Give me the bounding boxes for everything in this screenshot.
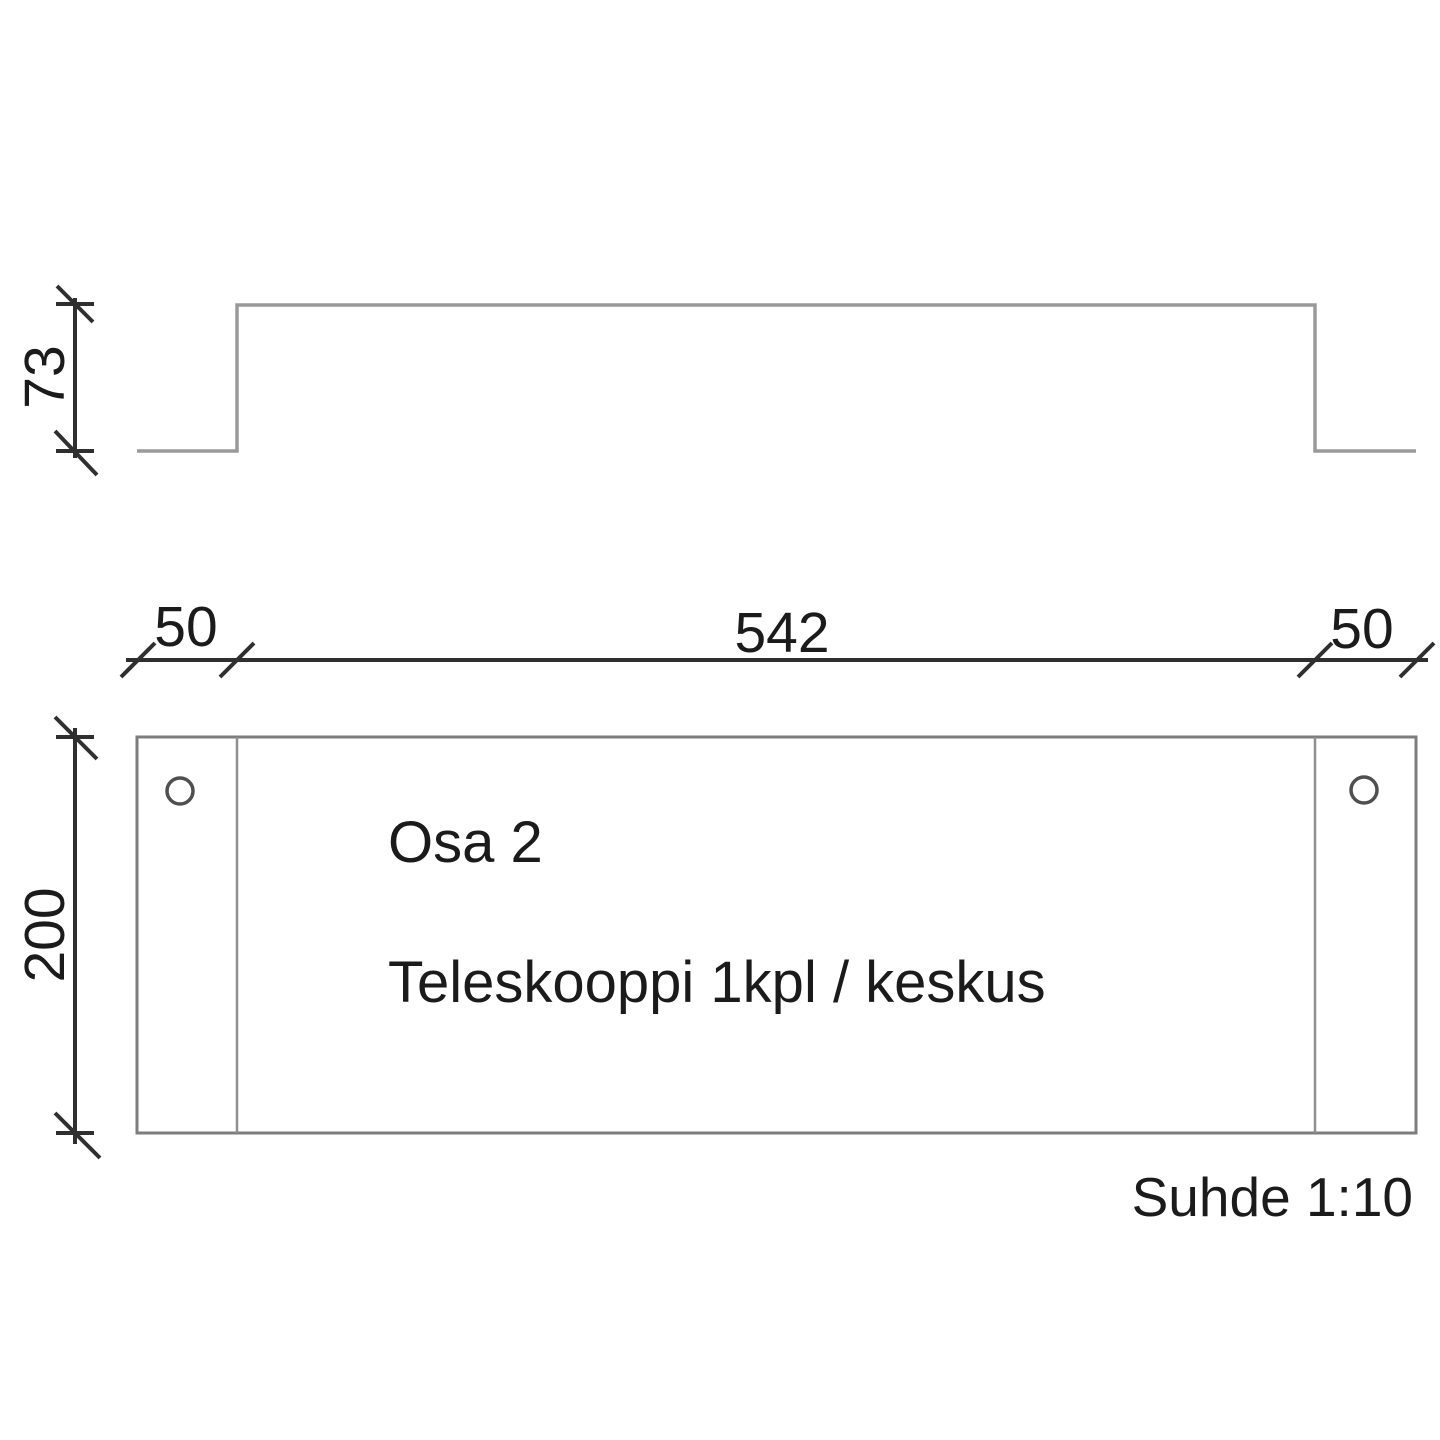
mounting-hole-left [167,778,193,804]
mounting-hole-right [1351,777,1377,803]
dim-tick-200-bottom [55,1113,100,1158]
profile-outline [137,305,1416,451]
scale-note-label: Suhde 1:10 [1132,1166,1413,1228]
technical-drawing-canvas: 73 50 542 50 200 Osa [0,0,1440,1440]
dim-value-profile-height: 73 [13,345,77,408]
dim-value-plate-height: 200 [13,887,77,982]
dim-value-body-width: 542 [734,601,829,665]
dim-value-right-flange: 50 [1330,597,1393,661]
part-description-label: Teleskooppi 1kpl / keskus [388,950,1046,1015]
plate-outline [137,737,1416,1133]
plan-view [137,737,1416,1133]
part-name-label: Osa 2 [388,810,543,875]
profile-view [137,305,1416,451]
dim-value-left-flange: 50 [154,595,217,659]
drawing-sheet: 73 50 542 50 200 Osa [0,0,1440,1440]
